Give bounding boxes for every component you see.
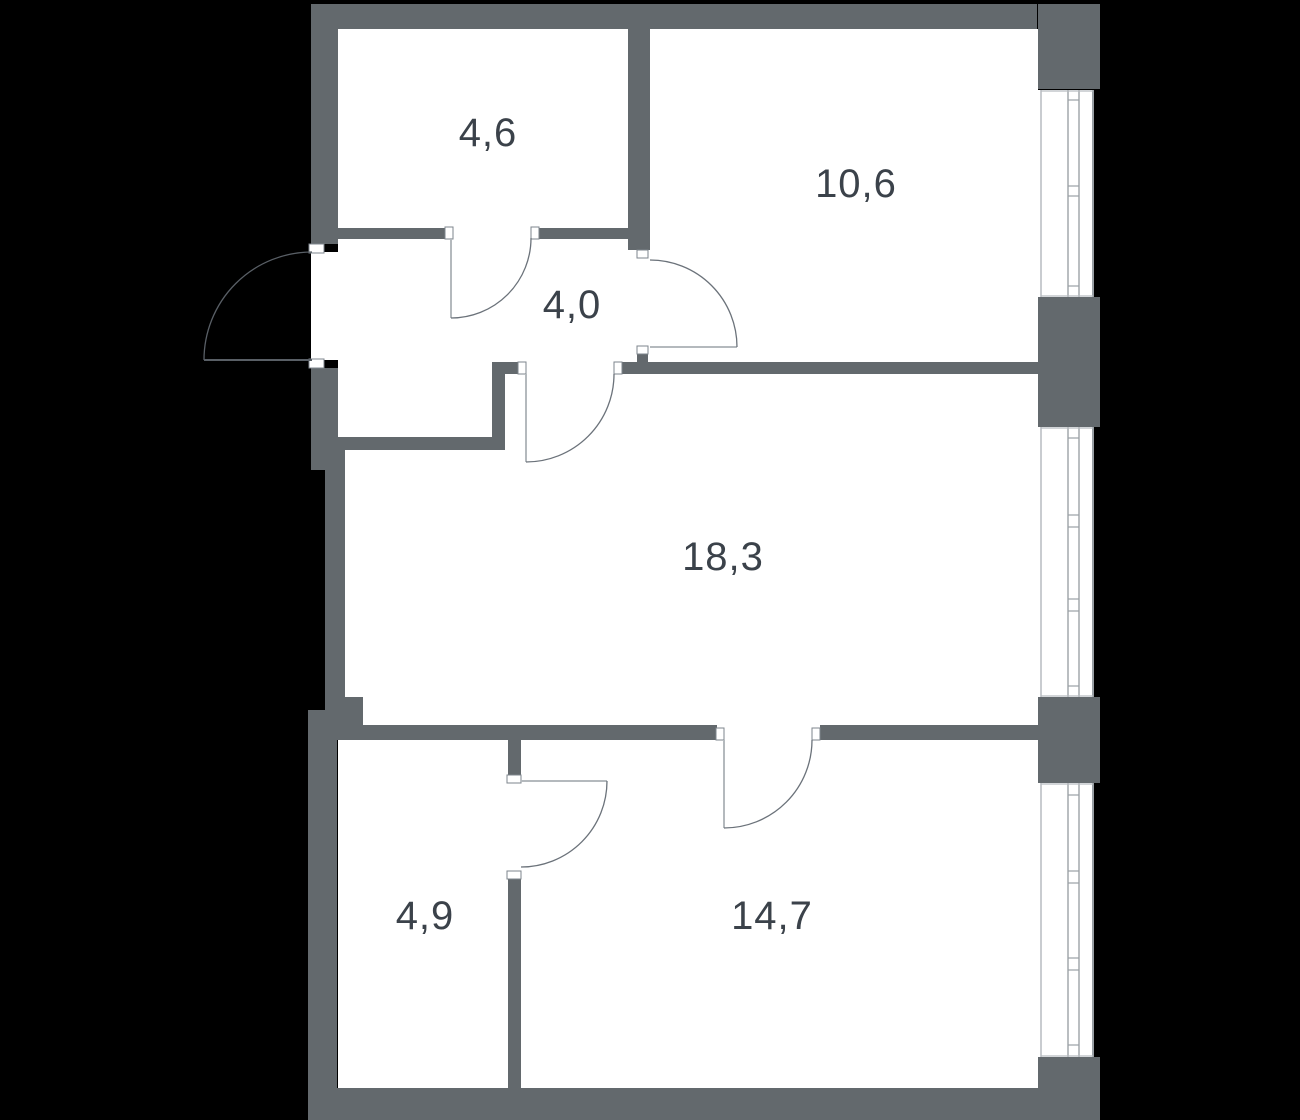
door-jamb-mark bbox=[637, 250, 648, 258]
door-jamb-mark bbox=[507, 871, 521, 879]
door-jamb-mark bbox=[614, 362, 622, 374]
wall-segment bbox=[338, 437, 505, 450]
wall-segment bbox=[337, 725, 717, 740]
room-floor-area bbox=[1038, 783, 1094, 1057]
room-floor-area bbox=[1038, 427, 1094, 697]
room-14-7-area-label: 14,7 bbox=[731, 894, 813, 938]
wall-segment bbox=[537, 228, 628, 239]
wall-segment bbox=[622, 362, 1038, 374]
door-jamb-mark bbox=[518, 362, 526, 374]
wall-segment bbox=[338, 228, 445, 239]
wall-segment bbox=[1038, 1057, 1100, 1120]
door-jamb-mark bbox=[812, 728, 820, 740]
room-18-3-area-label: 18,3 bbox=[682, 535, 764, 579]
floor-plan: 4,610,64,018,34,914,7 bbox=[0, 0, 1300, 1120]
wall-segment bbox=[508, 740, 521, 776]
wall-segment bbox=[492, 362, 518, 374]
wall-segment bbox=[308, 710, 337, 1120]
door-jamb-mark bbox=[445, 227, 453, 239]
wall-segment bbox=[1038, 4, 1100, 89]
wall-segment bbox=[311, 4, 338, 244]
wall-segment bbox=[308, 1088, 1100, 1120]
door-jamb-mark bbox=[507, 775, 521, 783]
room-10-6-area-label: 10,6 bbox=[815, 162, 897, 206]
wall-segment bbox=[508, 879, 521, 1088]
door-jamb-mark bbox=[531, 227, 539, 239]
hall-4-0-area-label: 4,0 bbox=[543, 283, 602, 327]
room-4-9-area-label: 4,9 bbox=[396, 894, 455, 938]
wall-segment bbox=[1038, 697, 1100, 783]
wall-segment bbox=[628, 29, 650, 250]
door-jamb-mark bbox=[637, 346, 648, 354]
wall-segment bbox=[820, 725, 1038, 740]
wall-segment bbox=[1038, 297, 1100, 427]
wall-segment bbox=[313, 4, 1037, 29]
wall-segment bbox=[325, 450, 345, 712]
room-floor-area bbox=[311, 252, 338, 360]
room-floor-area bbox=[1038, 90, 1094, 297]
door-jamb-mark bbox=[716, 728, 724, 740]
room-4-6-area-label: 4,6 bbox=[459, 111, 518, 155]
floor-plan-svg: 4,610,64,018,34,914,7 bbox=[0, 0, 1300, 1120]
